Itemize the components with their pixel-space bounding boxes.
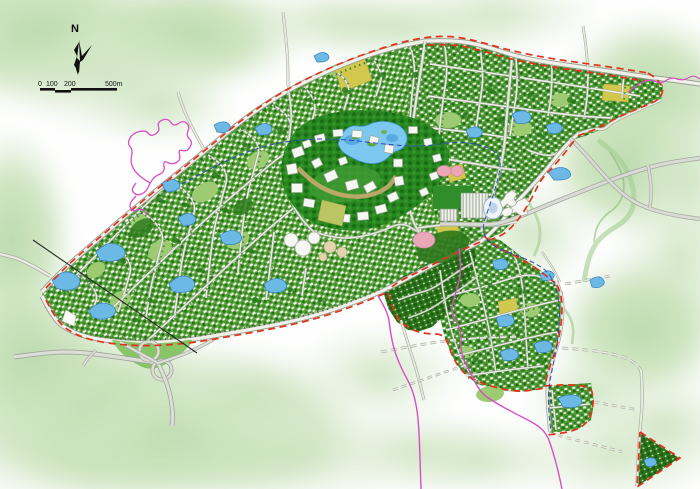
svg-text:500m: 500m (105, 81, 123, 88)
svg-text:N: N (71, 23, 79, 35)
svg-text:100: 100 (46, 81, 58, 88)
svg-text:0: 0 (38, 81, 42, 88)
svg-text:200: 200 (64, 81, 76, 88)
